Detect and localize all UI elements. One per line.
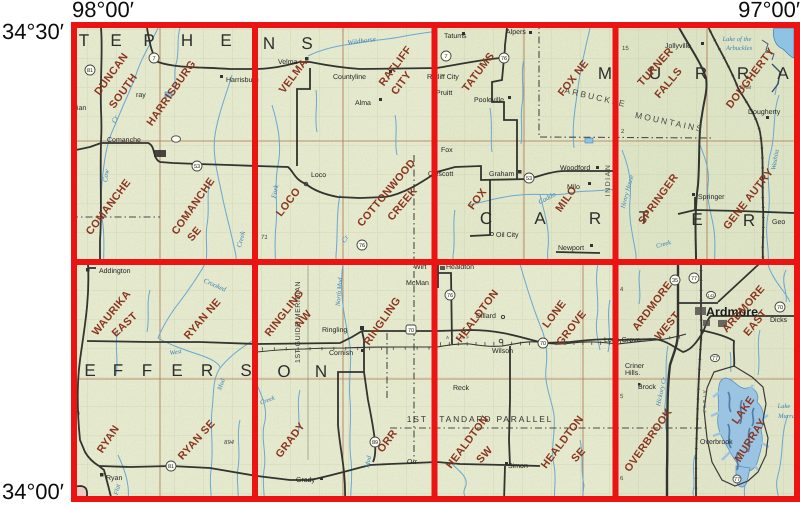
svg-text:98°00′: 98°00′	[72, 0, 134, 22]
svg-text:Cornish: Cornish	[329, 349, 353, 357]
svg-text:53: 53	[526, 176, 532, 182]
svg-text:Wilson: Wilson	[492, 347, 513, 355]
svg-text:Woodford: Woodford	[560, 164, 590, 172]
svg-text:C: C	[480, 209, 492, 228]
svg-text:7: 7	[444, 54, 447, 60]
svg-text:Lone Grove: Lone Grove	[604, 337, 641, 344]
svg-text:81: 81	[87, 68, 93, 74]
svg-text:Countyline: Countyline	[333, 73, 366, 81]
svg-text:15: 15	[622, 45, 629, 52]
svg-text:77: 77	[712, 356, 718, 362]
svg-text:Orr: Orr	[407, 459, 418, 466]
svg-text:Comanche: Comanche	[107, 136, 141, 144]
svg-text:E: E	[220, 31, 231, 50]
svg-text:O: O	[277, 362, 290, 381]
svg-text:E: E	[691, 210, 702, 229]
svg-text:Fox: Fox	[441, 147, 453, 154]
svg-text:70: 70	[540, 341, 546, 347]
svg-text:Reck: Reck	[453, 384, 469, 392]
svg-text:53: 53	[194, 164, 200, 170]
svg-text:81: 81	[168, 464, 174, 470]
svg-text:H: H	[181, 31, 193, 50]
svg-text:F: F	[113, 361, 123, 380]
svg-text:Geo: Geo	[772, 219, 785, 226]
svg-text:7: 7	[152, 56, 155, 62]
svg-text:McMan: McMan	[406, 280, 429, 287]
svg-text:Brock: Brock	[638, 383, 656, 391]
svg-text:S: S	[301, 34, 312, 53]
svg-text:70: 70	[777, 305, 783, 311]
svg-text:ray: ray	[136, 92, 146, 99]
svg-text:76: 76	[359, 243, 365, 249]
svg-text:R: R	[201, 361, 213, 380]
svg-text:T: T	[79, 31, 89, 50]
svg-text:77: 77	[734, 477, 740, 483]
svg-text:E: E	[171, 361, 182, 380]
svg-text:A: A	[777, 64, 789, 83]
svg-text:Overbrook: Overbrook	[700, 438, 733, 446]
svg-text:Lake: Lake	[777, 403, 791, 410]
svg-text:Loco: Loco	[311, 172, 326, 179]
svg-text:Hills.: Hills.	[625, 369, 640, 377]
svg-text:35: 35	[672, 278, 678, 284]
svg-text:N: N	[315, 362, 327, 381]
svg-text:N: N	[263, 34, 275, 53]
svg-text:INDIAN: INDIAN	[605, 164, 612, 197]
svg-text:Alma: Alma	[355, 99, 371, 107]
svg-text:71: 71	[261, 234, 268, 241]
svg-text:S: S	[240, 361, 251, 380]
svg-text:76: 76	[447, 293, 453, 299]
svg-text:M: M	[598, 64, 612, 83]
svg-text:Addington: Addington	[99, 267, 131, 275]
svg-text:Dicks: Dicks	[770, 316, 788, 324]
svg-text:R: R	[589, 209, 601, 228]
svg-text:E: E	[84, 361, 95, 380]
svg-text:Graham: Graham	[489, 170, 514, 178]
svg-text:Criner: Criner	[625, 362, 645, 370]
svg-text:Arbuckles: Arbuckles	[725, 45, 752, 52]
svg-text:Alpers: Alpers	[506, 28, 526, 36]
svg-text:34°30′: 34°30′	[2, 19, 64, 44]
svg-text:34°00′: 34°00′	[2, 479, 64, 504]
svg-text:894: 894	[224, 439, 235, 446]
svg-text:Tatums: Tatums	[444, 33, 467, 40]
svg-text:Grady: Grady	[296, 476, 316, 484]
svg-text:Lake of the: Lake of the	[722, 36, 752, 43]
svg-text:Simon: Simon	[508, 462, 528, 470]
svg-text:Dougherty: Dougherty	[748, 108, 781, 116]
svg-text:Ryan: Ryan	[106, 475, 122, 482]
svg-text:A T & S F: A T & S F	[702, 390, 707, 414]
svg-text:R: R	[695, 64, 707, 83]
svg-text:142: 142	[708, 293, 715, 298]
svg-text:Springer: Springer	[698, 193, 725, 201]
svg-text:F: F	[142, 361, 152, 380]
svg-text:Newport: Newport	[558, 245, 584, 252]
svg-text:A: A	[534, 209, 546, 228]
svg-text:70: 70	[408, 328, 414, 334]
svg-text:E: E	[110, 31, 121, 50]
svg-text:97°00′: 97°00′	[738, 0, 800, 22]
svg-text:Oil City: Oil City	[496, 231, 519, 239]
svg-text:Pruitt: Pruitt	[436, 89, 452, 97]
svg-text:Ringling: Ringling	[322, 326, 347, 334]
svg-text:77: 77	[691, 276, 697, 282]
svg-text:Pooleville: Pooleville	[474, 96, 504, 104]
svg-text:P: P	[143, 31, 154, 50]
svg-text:76: 76	[501, 56, 507, 62]
